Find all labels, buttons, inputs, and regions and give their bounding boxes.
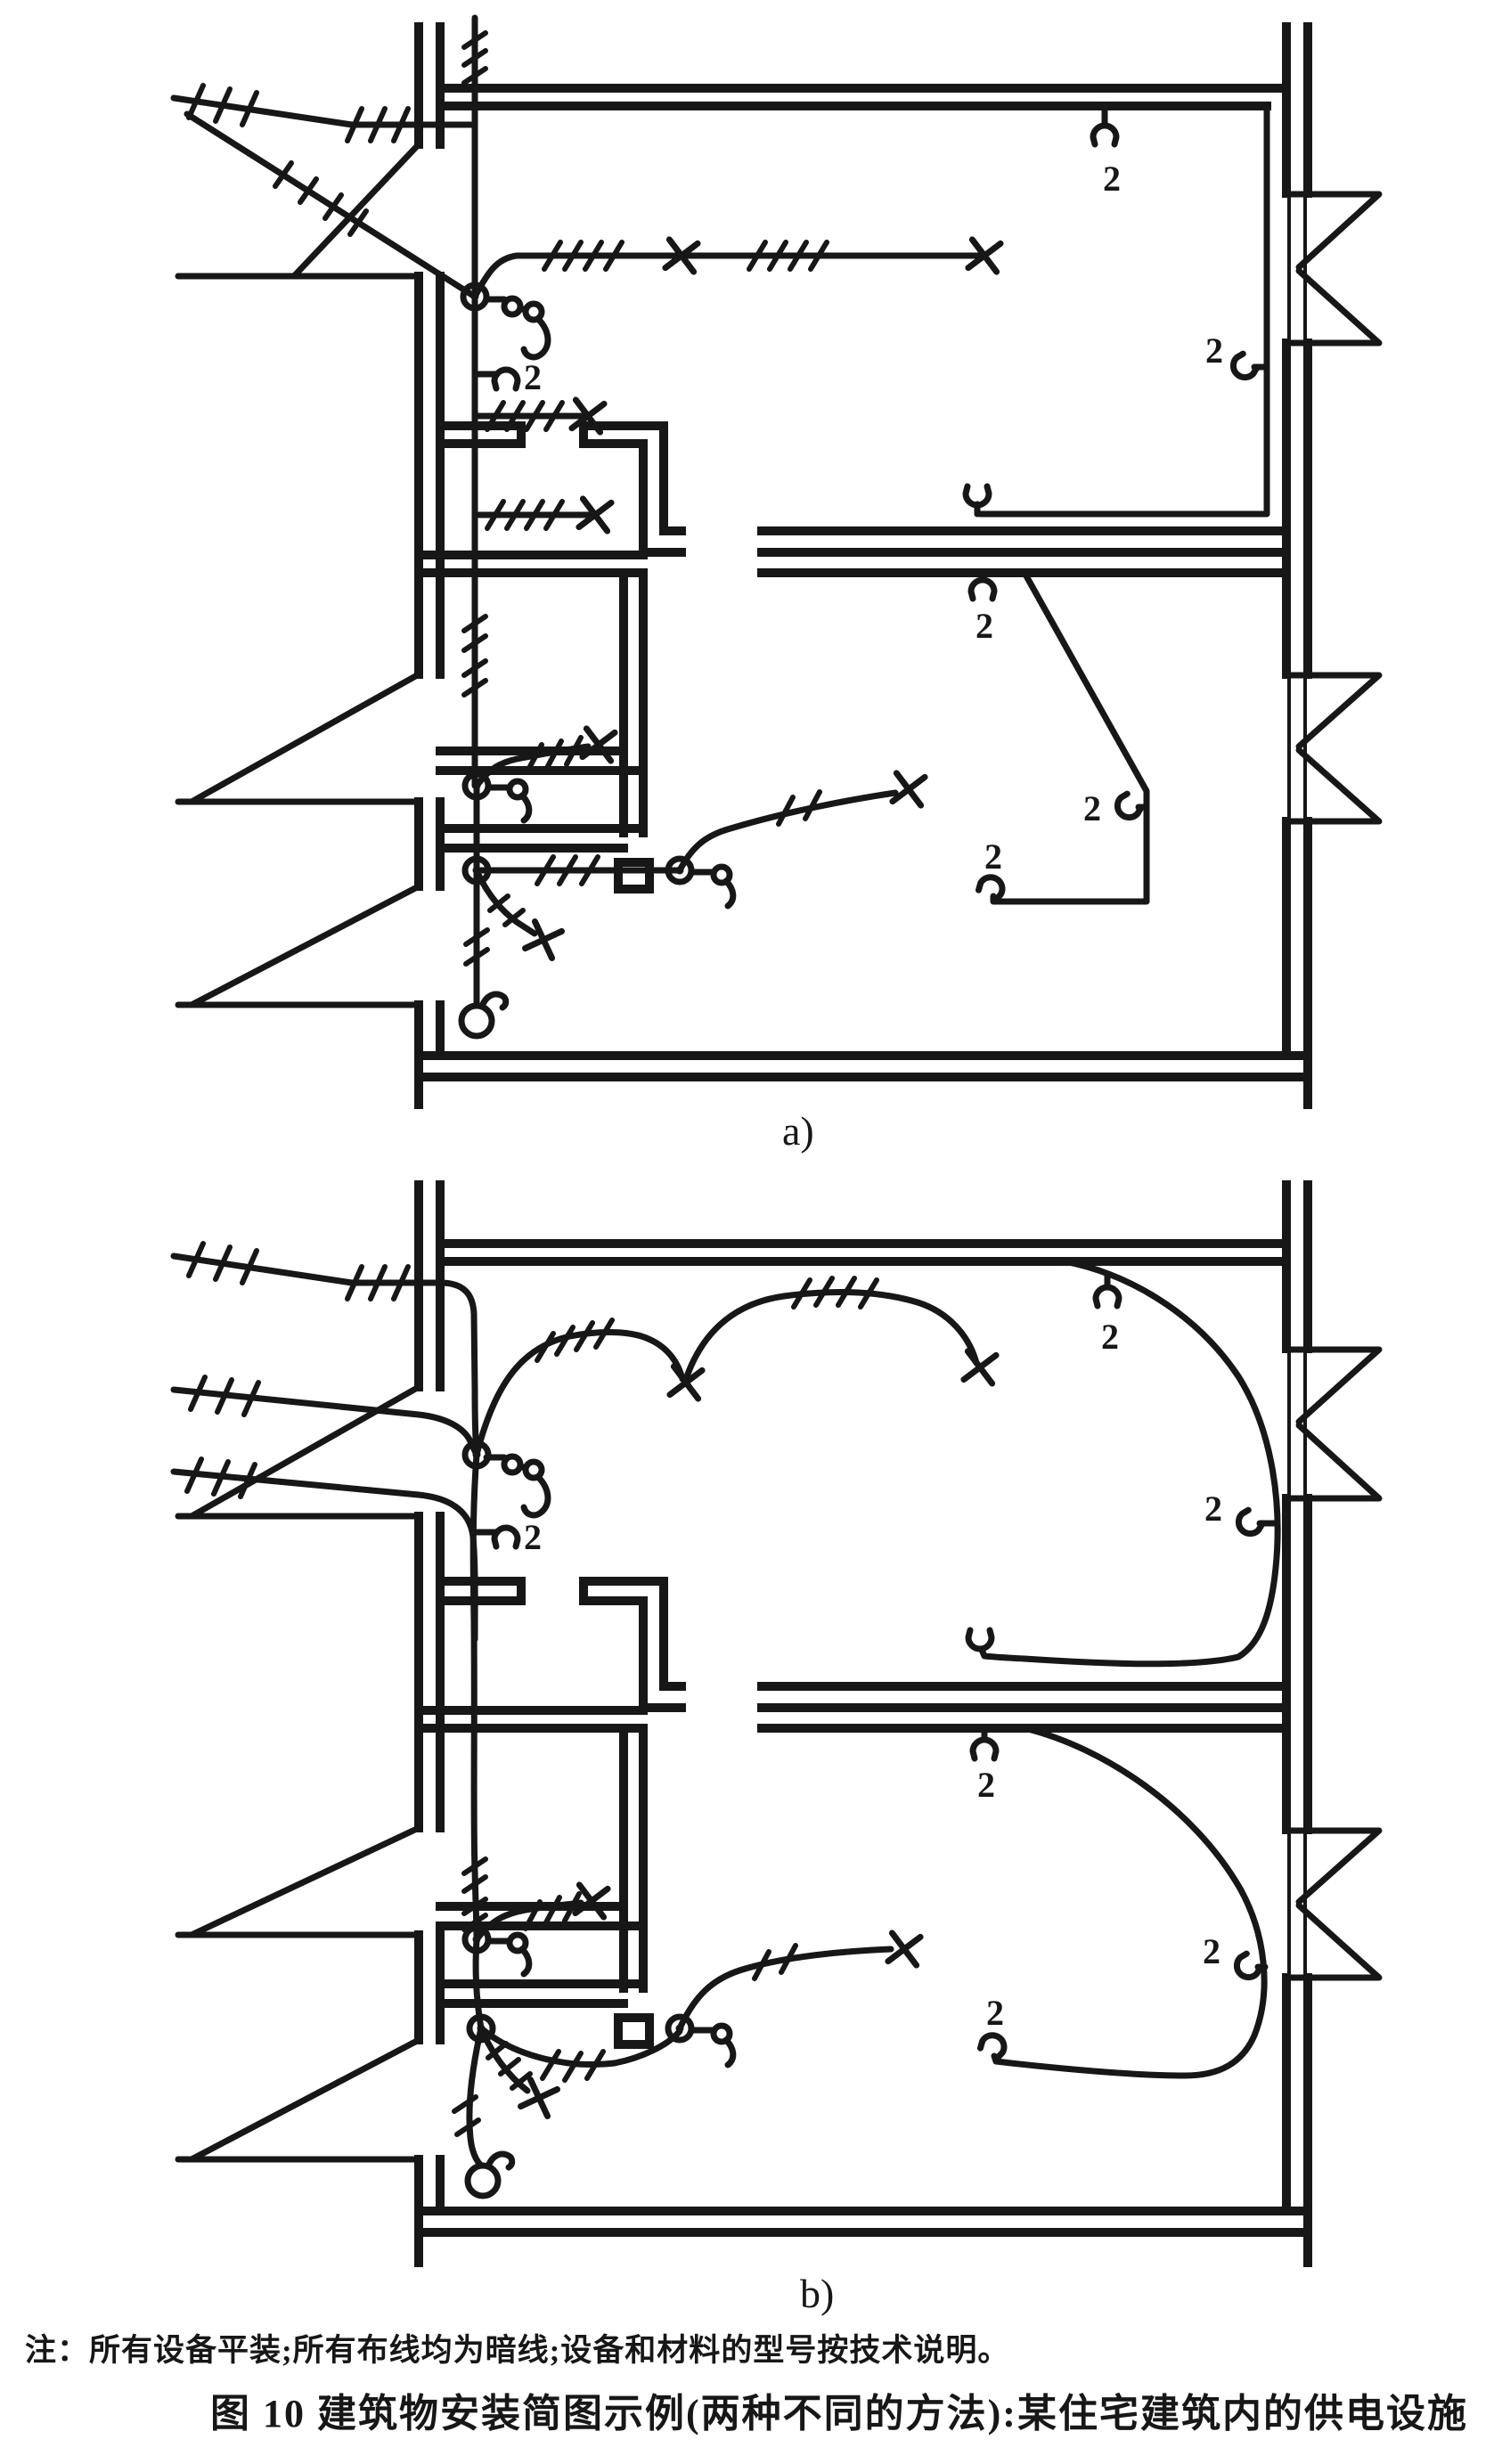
subfigure-a-label: a)	[782, 1111, 814, 1152]
socket-outlet-icon	[494, 370, 518, 388]
tick-marks	[537, 1320, 612, 1360]
wire-path	[686, 1293, 976, 1379]
socket-outlet-icon	[966, 486, 989, 505]
socket-count-label: 2	[1101, 1319, 1119, 1355]
wire-path	[983, 573, 1147, 902]
tick-marks	[543, 2052, 603, 2080]
window-triangle	[178, 2040, 419, 2159]
window-triangle	[1286, 1831, 1379, 1978]
wire-path	[977, 106, 1267, 514]
feed-wire	[174, 1256, 477, 1455]
tick-marks	[464, 33, 486, 83]
door-jamb	[618, 2018, 649, 2044]
tick-marks	[189, 1244, 257, 1283]
wall-segment	[440, 828, 643, 848]
socket-count-label: 2	[1204, 1491, 1222, 1527]
switch-lever	[524, 319, 548, 357]
wall-segment	[419, 2211, 1308, 2232]
socket-outlet-icon	[1234, 1509, 1263, 1538]
socket-count-label: 2	[524, 1520, 542, 1555]
socket-count-label: 2	[1083, 791, 1101, 827]
wall-segment	[440, 88, 1286, 106]
windows-left-b	[178, 1387, 419, 2159]
switch-icon	[510, 1935, 529, 1974]
diagram-b	[174, 1185, 1379, 2263]
window-triangle	[1286, 1350, 1379, 1498]
window-triangle	[178, 1387, 419, 1516]
pendant-lamp-icon	[461, 994, 506, 1036]
pendant-lamp-icon-a	[461, 994, 506, 1036]
switch-icon	[714, 867, 733, 906]
window-triangle	[178, 144, 419, 276]
wire-path	[982, 1261, 1278, 1664]
feed-wire	[174, 1472, 475, 1639]
socket-outlet-icon	[968, 1630, 992, 1649]
socket-count-label: 2	[1205, 333, 1223, 369]
switch-icon	[504, 1456, 520, 1473]
supply-feeds-b	[174, 1256, 477, 1939]
socket-outlet-icon	[1229, 353, 1258, 382]
window-triangle	[1286, 194, 1379, 343]
windows-right-a	[1286, 193, 1379, 821]
socket-count-label: 2	[1103, 161, 1121, 197]
windows-left-a	[178, 144, 419, 1005]
walls-b	[419, 1185, 1308, 2263]
wall-segment	[419, 555, 643, 573]
tick-marks	[537, 857, 598, 884]
ceiling-lamp-icon	[964, 1351, 996, 1383]
wire-path	[994, 1728, 1264, 2076]
figure-page: 2 2 2 2 2 2 2 2 2 2 2 2 a) b) 注：所有设备平装;所…	[0, 0, 1502, 2464]
wall-segment	[440, 1244, 1286, 1261]
socket-outlet-icon	[973, 1740, 996, 1758]
socket-count-label: 2	[975, 608, 993, 644]
wall-segment	[643, 1686, 1286, 1728]
windows-right-b	[1286, 1349, 1379, 1978]
socket-icons-b	[494, 1287, 1263, 2059]
socket-count-label: 2	[986, 1995, 1004, 2031]
electrical-installation-floor-plan	[0, 0, 1502, 2464]
wall-segment	[419, 1710, 643, 1728]
walls-a	[419, 27, 1308, 1105]
window-triangle	[1286, 675, 1379, 821]
subfigure-b-label: b)	[800, 2273, 834, 2314]
socket-count-label: 2	[984, 839, 1002, 875]
wall-segment	[643, 531, 1286, 573]
window-triangle	[178, 674, 419, 802]
door-jamb	[618, 862, 649, 889]
wall-segment	[440, 1984, 643, 2003]
tick-marks	[347, 1267, 408, 1299]
wall-segment	[624, 1728, 643, 1988]
socket-count-label: 2	[977, 1767, 995, 1803]
switch-icon	[504, 298, 520, 314]
socket-outlet-icon	[1113, 793, 1142, 822]
wall-segment	[419, 1056, 1308, 1077]
tick-marks	[347, 109, 408, 141]
socket-outlet-icon	[1232, 1953, 1261, 1982]
ceiling-lamp-icon	[525, 921, 561, 958]
switch-lever	[524, 1477, 548, 1515]
socket-outlet-icon	[1093, 126, 1116, 144]
figure-note: 注：所有设备平装;所有布线均为暗线;设备和材料的型号按技术说明。	[25, 2332, 1468, 2370]
switch-icon	[510, 781, 529, 820]
ceiling-lamp-icon	[520, 2079, 557, 2116]
socket-outlet-icon	[494, 1528, 518, 1546]
figure-caption: 图 10 建筑物安装简图示例(两种不同的方法):某住宅建筑内的供电设施	[210, 2391, 1493, 2438]
supply-feeds-a	[174, 18, 475, 297]
ceiling-lamp-icon	[893, 773, 925, 805]
junction-box-icon	[668, 2017, 691, 2040]
socket-count-label: 2	[1203, 1934, 1220, 1970]
window-triangle	[178, 1828, 419, 1935]
window-triangle	[178, 886, 419, 1005]
feed-wire	[174, 1390, 477, 1455]
socket-outlet-icon	[971, 580, 994, 599]
diagram-a	[174, 18, 1379, 1105]
wire-path	[477, 1333, 682, 1456]
switch-icon	[714, 2026, 733, 2065]
wall-segment	[624, 573, 643, 833]
socket-stub	[1105, 106, 1267, 367]
socket-count-label: 2	[524, 360, 542, 396]
socket-outlet-icon	[1096, 1287, 1119, 1306]
